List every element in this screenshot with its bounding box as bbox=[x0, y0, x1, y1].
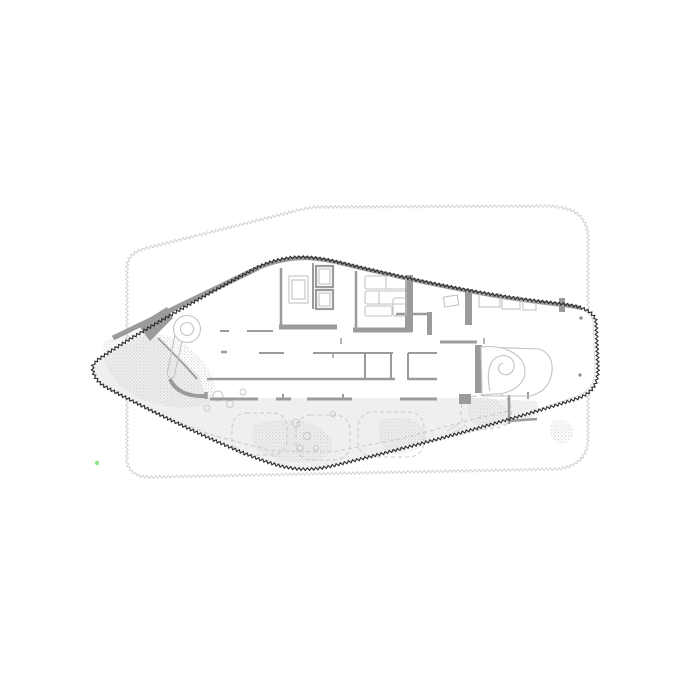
floor-plan-canvas bbox=[0, 0, 700, 700]
wall-pier bbox=[459, 394, 471, 404]
column-dot bbox=[578, 373, 581, 376]
room-wall-pier bbox=[465, 289, 472, 325]
column-dot bbox=[579, 316, 582, 319]
faint-room-outline bbox=[443, 295, 458, 307]
planting-stipple-area bbox=[551, 420, 573, 444]
room-wall-pier bbox=[427, 312, 432, 335]
floor-plan-drawing bbox=[0, 0, 700, 700]
green-marker-dot bbox=[95, 461, 99, 465]
room-wall-pier bbox=[559, 298, 565, 312]
